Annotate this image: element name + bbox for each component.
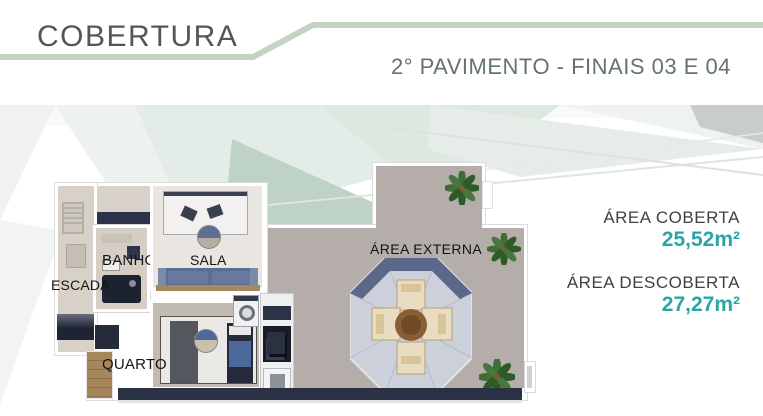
page-root: { "header": { "title": "COBERTURA", "sub… xyxy=(0,0,763,416)
room-label-quarto: QUARTO xyxy=(102,356,167,373)
terrace-wall-protrusion xyxy=(483,182,492,208)
headboard-bar xyxy=(97,212,150,225)
floor-plan: BANHO SALA xyxy=(55,163,535,403)
room-banho: BANHO xyxy=(93,225,150,312)
gourmet-counter xyxy=(260,293,294,400)
area-coberta-label: ÁREA COBERTA xyxy=(567,208,740,228)
room-label-area-externa: ÁREA EXTERNA xyxy=(370,241,482,257)
room-label-sala: SALA xyxy=(190,252,227,268)
room-sala: SALA xyxy=(150,183,265,291)
granite-counter xyxy=(263,326,291,362)
bottom-wall-band xyxy=(118,388,522,400)
room-escada xyxy=(55,183,97,355)
wardrobe xyxy=(170,321,198,383)
bath-counter xyxy=(102,234,132,243)
counter-top xyxy=(263,306,291,320)
area-coberta-value: 25,52m² xyxy=(567,228,740,252)
octagon-deck xyxy=(350,258,472,393)
washing-machine xyxy=(233,295,259,327)
plant-icon xyxy=(445,171,479,205)
stair-flight xyxy=(57,314,94,340)
terrace-pillar xyxy=(525,362,535,392)
room-label-banho: BANHO xyxy=(102,252,156,269)
stair-flight-lower xyxy=(95,325,119,349)
round-chair xyxy=(197,225,221,249)
area-info-panel: ÁREA COBERTA 25,52m² ÁREA DESCOBERTA 27,… xyxy=(567,208,740,338)
page-title: COBERTURA xyxy=(37,20,238,54)
closet-strip xyxy=(97,186,150,212)
stair-ladder xyxy=(62,202,84,234)
area-descoberta-value: 27,27m² xyxy=(567,293,740,317)
plant-icon xyxy=(487,233,521,265)
bottom-wall-base xyxy=(118,400,522,403)
page-subtitle: 2° PAVIMENTO - FINAIS 03 E 04 xyxy=(391,54,731,80)
round-chair xyxy=(194,329,218,353)
stair-landing xyxy=(66,244,86,268)
room-label-escada: ESCADA xyxy=(51,277,110,293)
sofa-wood-base xyxy=(156,285,260,291)
area-descoberta-label: ÁREA DESCOBERTA xyxy=(567,273,740,293)
bed xyxy=(227,323,253,383)
